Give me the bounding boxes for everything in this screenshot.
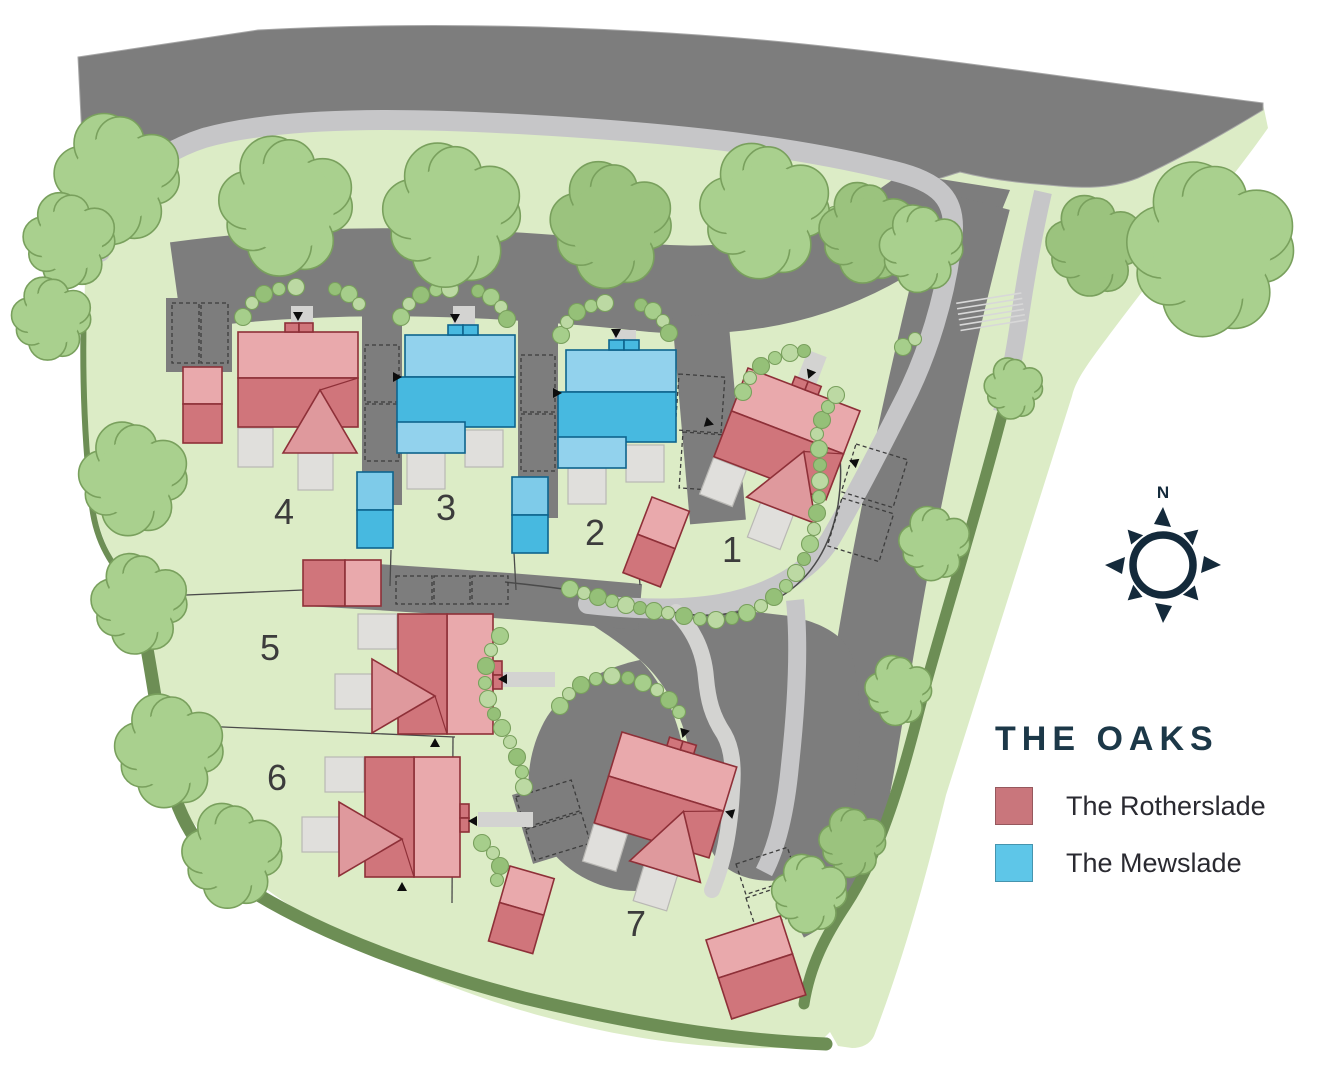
compass-ring xyxy=(1133,535,1193,595)
legend-item-mewslade: The Mewslade xyxy=(995,844,1325,882)
plot-label-1: 1 xyxy=(722,529,742,570)
legend-panel: THE OAKS The Rotherslade The Mewslade xyxy=(995,720,1325,901)
plot-label-6: 6 xyxy=(267,757,287,798)
garden-store xyxy=(512,477,548,553)
legend-swatch-rotherslade xyxy=(995,787,1033,825)
legend-swatch-mewslade xyxy=(995,844,1033,882)
legend-label-mewslade: The Mewslade xyxy=(1066,848,1242,879)
plot-label-7: 7 xyxy=(626,903,646,944)
plot-label-5: 5 xyxy=(260,627,280,668)
legend-title: THE OAKS xyxy=(995,720,1325,759)
plot-label-2: 2 xyxy=(585,512,605,553)
legend-item-rotherslade: The Rotherslade xyxy=(995,787,1325,825)
plot-label-3: 3 xyxy=(436,487,456,528)
compass-north-label: N xyxy=(1157,483,1169,502)
site-plan-map: 1234567 N xyxy=(0,0,1327,1080)
compass-rose: N xyxy=(1105,483,1221,623)
garage xyxy=(183,367,222,443)
site-plan: 1234567 N THE OAKS The Rotherslade xyxy=(0,0,1327,1080)
garage xyxy=(303,560,381,606)
tree xyxy=(12,277,91,360)
garden-store xyxy=(357,472,393,548)
legend-label-rotherslade: The Rotherslade xyxy=(1066,791,1266,822)
compass-points xyxy=(1105,507,1221,623)
plot-label-4: 4 xyxy=(274,491,294,532)
